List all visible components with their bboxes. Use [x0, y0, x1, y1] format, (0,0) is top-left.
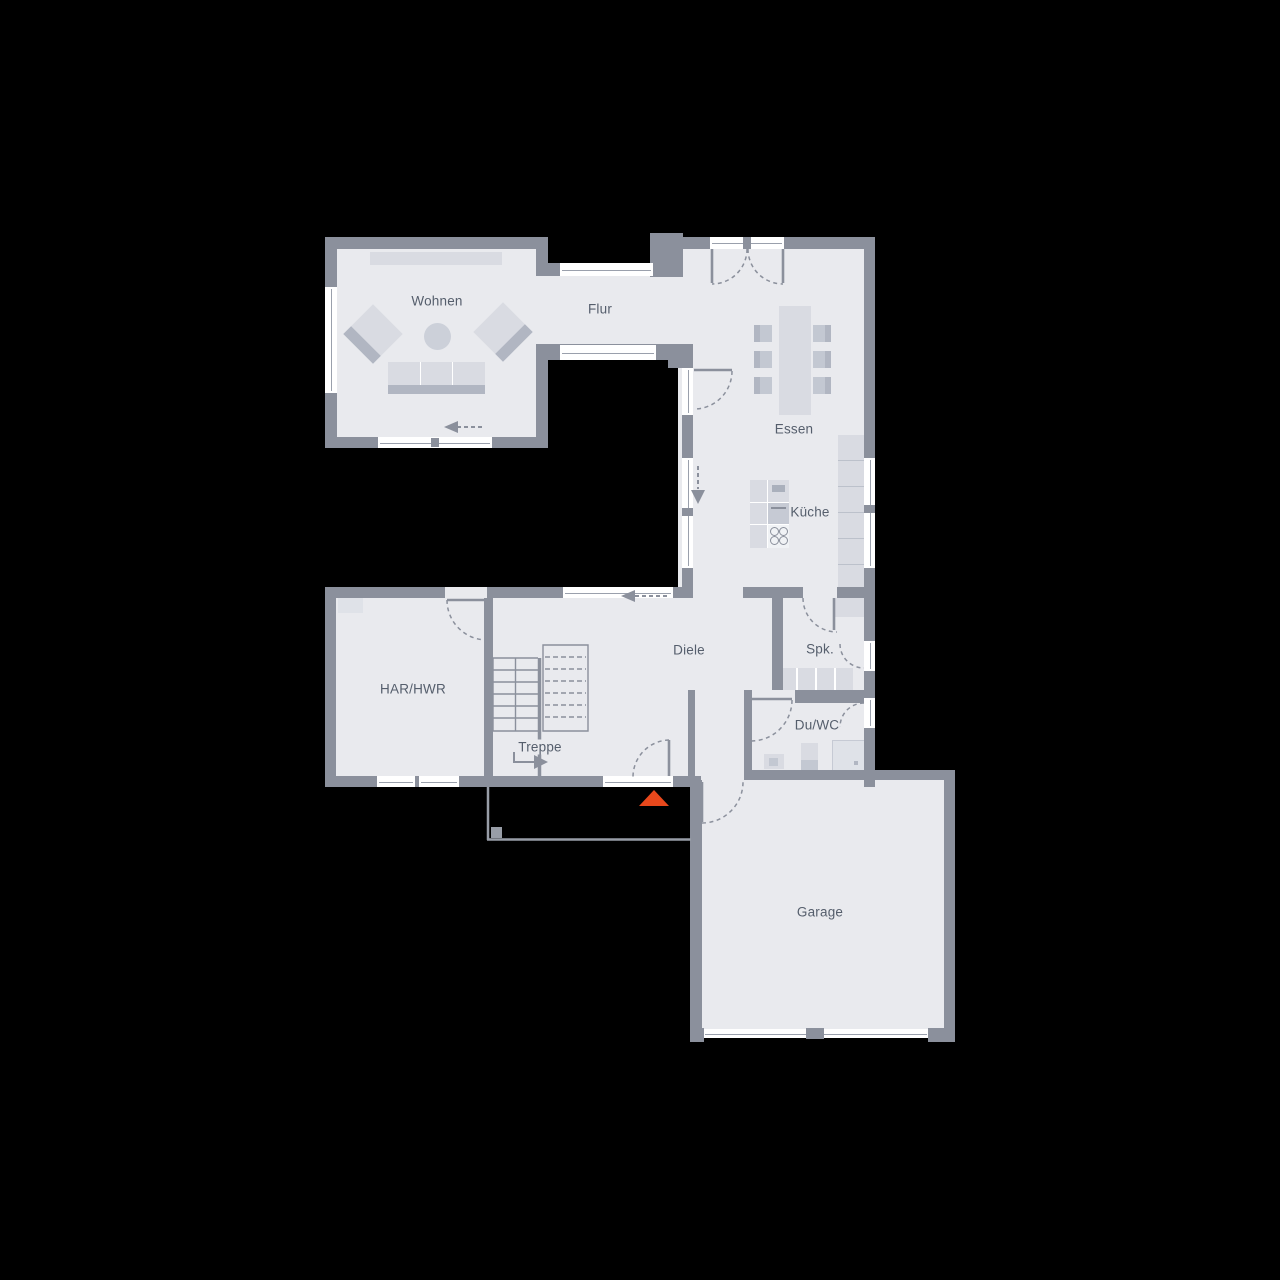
room-label-diele: Diele: [673, 643, 705, 658]
flow-arrow-wohnen: [444, 421, 482, 433]
flow-arrow-kueche: [691, 466, 705, 504]
room-label-har: HAR/HWR: [380, 682, 446, 697]
room-label-duwc: Du/WC: [795, 718, 840, 733]
door-leaf: [447, 249, 834, 822]
room-label-garage: Garage: [797, 905, 843, 920]
entrance-triangle-icon: [639, 790, 669, 806]
room-label-essen: Essen: [775, 422, 814, 437]
plan-linework: [0, 0, 1280, 1280]
door-swing-arc: [447, 249, 864, 823]
room-label-kueche: Küche: [790, 505, 829, 520]
stairs-dashed-flight: [543, 645, 588, 731]
room-label-flur: Flur: [588, 302, 612, 317]
room-label-treppe: Treppe: [515, 740, 564, 755]
floor-plan: Wohnen Flur Essen Küche Diele Spk. Du/WC…: [0, 0, 1280, 1280]
stair-direction-arrow: [514, 752, 548, 769]
room-label-spk: Spk.: [806, 642, 834, 657]
flow-arrow-diele: [621, 590, 667, 602]
porch-post: [491, 827, 502, 838]
stairs-solid-flight: [493, 658, 538, 731]
room-label-wohnen: Wohnen: [411, 294, 462, 309]
